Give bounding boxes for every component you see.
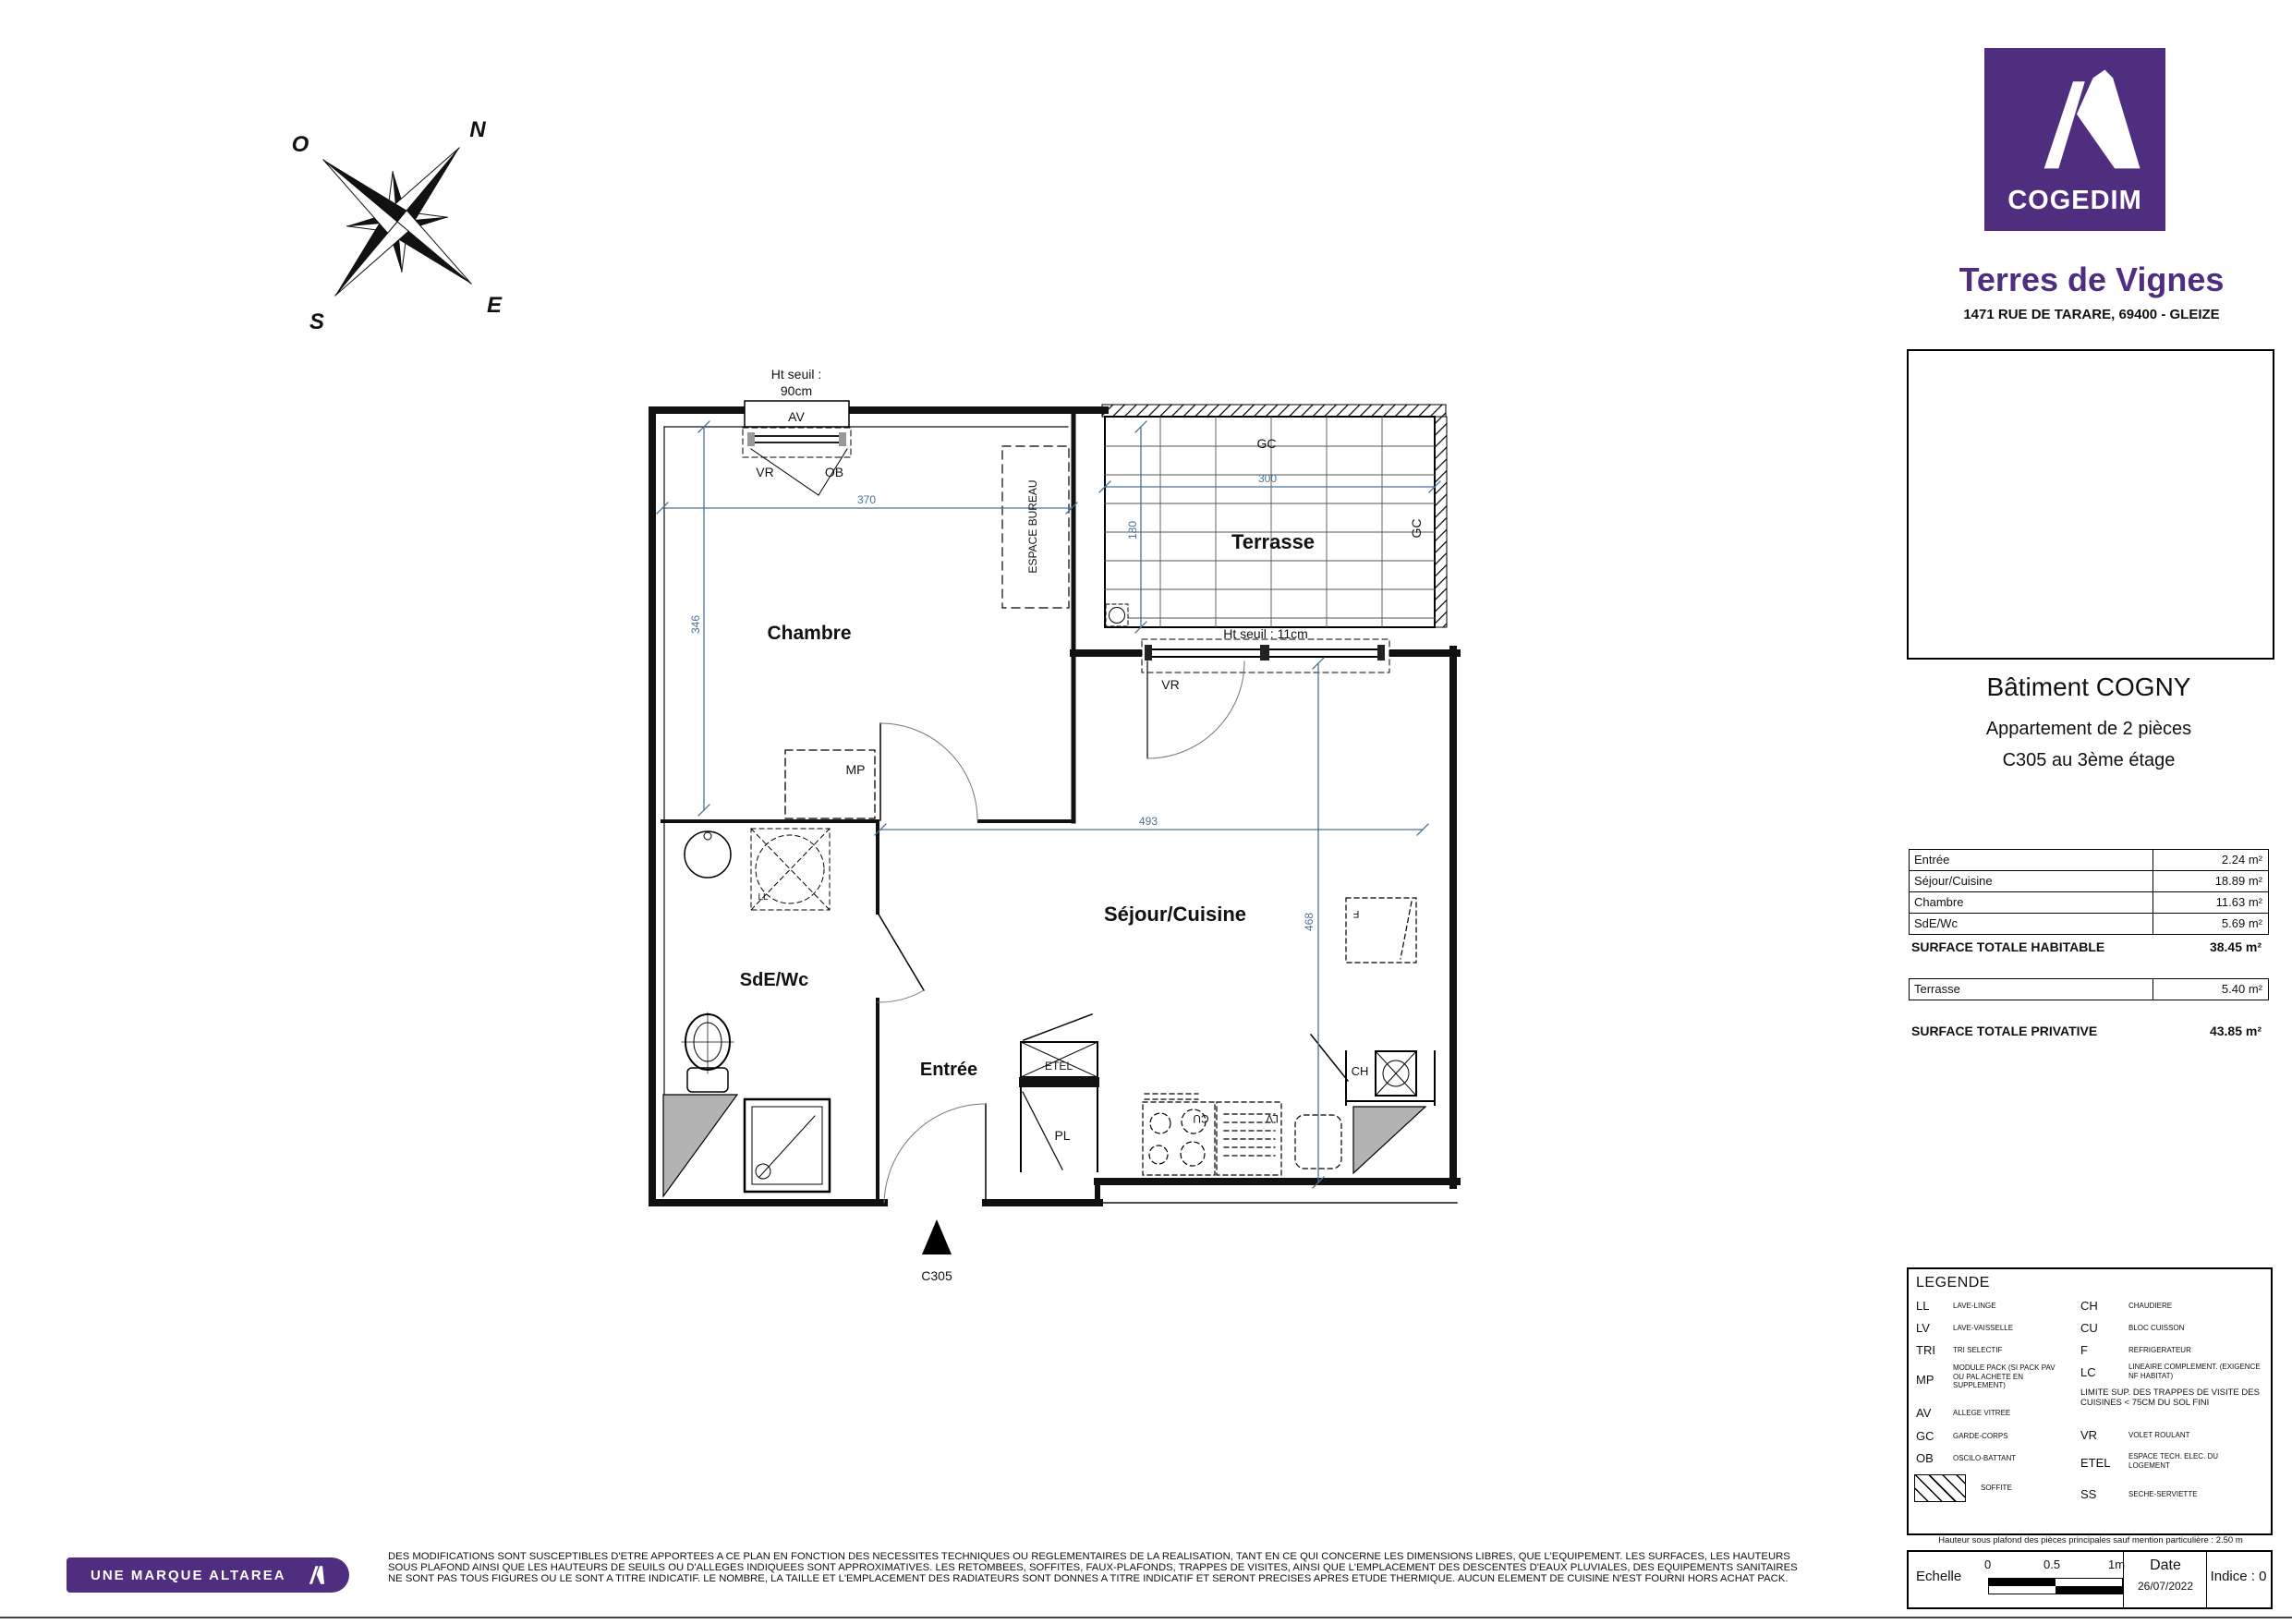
legend-abbr: AV — [1916, 1406, 1931, 1420]
legend-abbr: VR — [2080, 1428, 2097, 1442]
legend-desc: GARDE-CORPS — [1953, 1432, 2071, 1441]
total-habitable-row: SURFACE TOTALE HABITABLE 38.45 m² — [1909, 939, 2267, 954]
disclaimer-line3: NE SONT PAS TOUS FIGURES OU LE SONT A TI… — [388, 1574, 1903, 1585]
terrace-window-vr — [1142, 639, 1389, 758]
legend-abbr: SS — [2080, 1487, 2096, 1501]
surface-label: SdE/Wc — [1910, 914, 2153, 934]
legend-desc: MODULE PACK (SI PACK PAV OU PAL ACHETE E… — [1953, 1363, 2064, 1390]
compass-o: O — [292, 132, 309, 157]
echelle-label: Echelle — [1916, 1569, 1961, 1624]
compass-e: E — [487, 293, 503, 318]
altarea-banner-text: UNE MARQUE ALTAREA — [91, 1568, 286, 1583]
total-privative-row: SURFACE TOTALE PRIVATIVE 43.85 m² — [1909, 1024, 2267, 1038]
legend-desc: VOLET ROULANT — [2128, 1431, 2247, 1440]
legend-desc: LINEAIRE COMPLEMENT. (EXIGENCE NF HABITA… — [2128, 1363, 2265, 1380]
total-privative-value: 43.85 m² — [2153, 1024, 2267, 1038]
building-title: Bâtiment COGNY — [1907, 673, 2271, 702]
label-vr: VR — [756, 465, 773, 479]
date-label: Date — [2128, 1557, 2202, 1574]
label-lv: LV — [1266, 1112, 1279, 1125]
surface-value: 5.69 m² — [2153, 914, 2268, 934]
legend-note: LIMITE SUP. DES TRAPPES DE VISITE DES CU… — [2080, 1388, 2273, 1408]
boiler-closet — [1311, 1035, 1435, 1105]
terrasse-value: 5.40 m² — [2153, 979, 2268, 1000]
legend-desc: LAVE-LINGE — [1953, 1302, 2071, 1311]
divider — [2206, 1552, 2207, 1607]
label-gc-right: GC — [1409, 519, 1424, 539]
interior-walls — [662, 821, 1073, 1203]
legend-abbr: ETEL — [2080, 1456, 2111, 1470]
floorplan-document: { "brand": { "logo_text": "COGEDIM", "pr… — [0, 0, 2292, 1620]
cogedim-logo: COGEDIM — [1984, 48, 2165, 231]
scale-bar — [1988, 1578, 2123, 1594]
date-value: 26/07/2022 — [2125, 1580, 2206, 1593]
label-vr-terrasse: VR — [1161, 677, 1179, 692]
surface-label: Séjour/Cuisine — [1910, 871, 2153, 891]
titleblock-bar: Echelle 0 0.5 1m Date 26/07/2022 Indice … — [1907, 1550, 2273, 1609]
ht-seuil-90-line2: 90cm — [781, 383, 812, 398]
legend-abbr: GC — [1916, 1429, 1934, 1443]
chambre-door — [880, 723, 977, 820]
table-row: Chambre 11.63 m² — [1910, 892, 2268, 914]
table-row: Entrée 2.24 m² — [1910, 850, 2268, 871]
altarea-lambda-icon — [299, 1562, 331, 1588]
project-address: 1471 RUE DE TARARE, 69400 - GLEIZE — [1907, 307, 2276, 322]
legend-abbr: CU — [2080, 1321, 2098, 1335]
altarea-banner: UNE MARQUE ALTAREA — [67, 1557, 349, 1593]
table-row: SdE/Wc 5.69 m² — [1910, 914, 2268, 934]
surface-label: Chambre — [1910, 892, 2153, 913]
surface-value: 11.63 m² — [2153, 892, 2268, 913]
cogedim-logo-text: COGEDIM — [1984, 186, 2165, 216]
dim-468: 468 — [1303, 913, 1316, 931]
disclaimer-line2: SOUS PLAFOND AINSI QUE LES HAUTEURS DE S… — [388, 1563, 1903, 1574]
kitchen-counter — [1143, 1094, 1341, 1175]
label-espace-bureau: ESPACE BUREAU — [1026, 479, 1039, 573]
legend-desc: ESPACE TECH. ELEC. DU LOGEMENT — [2128, 1452, 2258, 1470]
room-terrasse: Terrasse — [1231, 530, 1315, 553]
etel-closet — [1019, 1014, 1099, 1171]
key-plan-box — [1907, 349, 2274, 660]
table-row: Séjour/Cuisine 18.89 m² — [1910, 871, 2268, 892]
legend-abbr: LL — [1916, 1299, 1929, 1313]
table-row: Terrasse 5.40 m² — [1910, 979, 2268, 1000]
room-sejour: Séjour/Cuisine — [1104, 903, 1246, 926]
compass-n: N — [469, 117, 486, 142]
total-habitable-value: 38.45 m² — [2153, 939, 2267, 954]
legend-abbr: LV — [1916, 1321, 1930, 1335]
legend-desc: SECHE-SERVIETTE — [2128, 1490, 2247, 1499]
legend-desc: BLOC CUISSON — [2128, 1324, 2247, 1333]
ht-seuil-90-line1: Ht seuil : — [771, 367, 821, 382]
surface-label: Entrée — [1910, 850, 2153, 870]
legend-desc: LAVE-VAISSELLE — [1953, 1324, 2071, 1333]
label-c305: C305 — [921, 1268, 952, 1283]
label-ll: LL — [758, 892, 769, 903]
legend-abbr: CH — [2080, 1299, 2098, 1313]
label-mp: MP — [846, 762, 866, 777]
scale-tick-05: 0.5 — [2043, 1557, 2060, 1571]
label-av: AV — [788, 409, 805, 424]
room-sde: SdE/Wc — [740, 970, 808, 990]
room-chambre: Chambre — [767, 623, 851, 644]
total-habitable-label: SURFACE TOTALE HABITABLE — [1909, 939, 2153, 954]
legend-box: LEGENDE LL LAVE-LINGE LV LAVE-VAISSELLE … — [1907, 1267, 2273, 1535]
dim-180: 180 — [1126, 521, 1139, 539]
shower — [745, 1099, 830, 1192]
legend-desc: CHAUDIERE — [2128, 1302, 2247, 1311]
legend-abbr: TRI — [1916, 1343, 1935, 1357]
entry-door — [884, 1104, 986, 1203]
ceiling-height-note: Hauteur sous plafond des pièces principa… — [1910, 1535, 2271, 1545]
surface-value: 2.24 m² — [2153, 850, 2268, 870]
compass-rose: N E S O — [292, 117, 503, 334]
ht-seuil-terrasse: Ht seuil : 11cm — [1223, 626, 1308, 641]
disclaimer: DES MODIFICATIONS SONT SUSCEPTIBLES D'ET… — [388, 1552, 1903, 1584]
room-entree: Entrée — [920, 1060, 977, 1080]
legend-title: LEGENDE — [1916, 1275, 1990, 1291]
label-f: F — [1352, 908, 1359, 919]
building-subtitle-type: Appartement de 2 pièces — [1907, 719, 2271, 740]
compass-s: S — [309, 309, 324, 334]
building-subtitle-unit: C305 au 3ème étage — [1907, 750, 2271, 771]
fridge-zone — [1346, 898, 1416, 963]
washbasin — [685, 831, 731, 878]
dimension-lines — [657, 421, 1440, 1188]
surface-value: 18.89 m² — [2153, 871, 2268, 891]
kitchen-soffite-triangle — [1353, 1107, 1425, 1173]
dim-300: 300 — [1258, 472, 1277, 485]
label-ch: CH — [1352, 1064, 1369, 1078]
sde-soffite-triangle — [663, 1095, 737, 1196]
dim-493: 493 — [1139, 815, 1158, 828]
label-ob: OB — [825, 465, 843, 479]
entrance-marker — [922, 1219, 952, 1254]
legend-abbr: OB — [1916, 1451, 1934, 1465]
floor-plan: Ht seuil : 90cm AV VR OB Chambre ESPACE … — [652, 367, 1457, 1283]
legend-abbr: MP — [1916, 1373, 1934, 1387]
toilet — [682, 1012, 734, 1092]
legend-desc: TRI SELECTIF — [1953, 1346, 2071, 1355]
surface-table: Entrée 2.24 m² Séjour/Cuisine 18.89 m² C… — [1909, 849, 2269, 935]
sde-door — [878, 913, 924, 1002]
legend-desc: REFRIGERATEUR — [2128, 1346, 2247, 1355]
label-gc-top: GC — [1257, 436, 1277, 451]
project-title: Terres de Vignes — [1907, 261, 2276, 299]
terrasse-table: Terrasse 5.40 m² — [1909, 978, 2269, 1000]
soffite-band-right — [1435, 417, 1447, 627]
legend-abbr: F — [2080, 1343, 2088, 1357]
legend-desc: OSCILO-BATTANT — [1953, 1454, 2071, 1463]
dim-346: 346 — [689, 615, 702, 634]
divider — [2123, 1552, 2124, 1607]
page-bottom-rule — [0, 1617, 2292, 1618]
dim-370: 370 — [857, 493, 876, 506]
soffite-band-top — [1102, 405, 1446, 417]
label-etel: ETEL — [1045, 1060, 1073, 1073]
label-pl: PL — [1054, 1128, 1070, 1143]
scale-tick-0: 0 — [1984, 1557, 1991, 1571]
legend-abbr: LC — [2080, 1365, 2096, 1379]
label-cu: CU — [1193, 1112, 1208, 1125]
indice-label: Indice : 0 — [2210, 1569, 2267, 1584]
mp-module — [785, 750, 875, 818]
legend-desc: ALLEGE VITREE — [1953, 1409, 2071, 1418]
soffite-swatch — [1914, 1474, 1966, 1502]
total-privative-label: SURFACE TOTALE PRIVATIVE — [1909, 1024, 2153, 1038]
terrasse-label: Terrasse — [1910, 979, 2153, 1000]
